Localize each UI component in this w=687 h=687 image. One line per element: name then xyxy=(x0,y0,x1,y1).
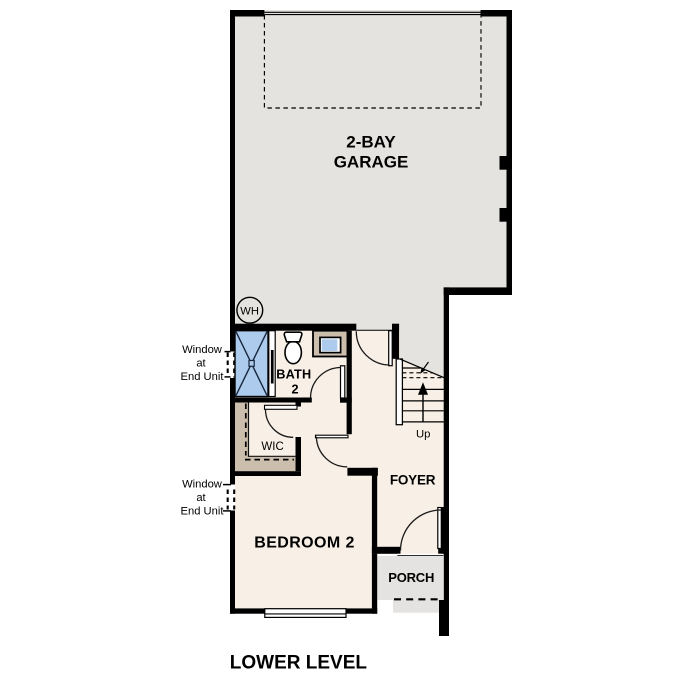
svg-text:at: at xyxy=(196,358,206,370)
svg-text:BEDROOM 2: BEDROOM 2 xyxy=(254,535,355,552)
svg-text:GARAGE: GARAGE xyxy=(334,153,409,172)
svg-text:Up: Up xyxy=(416,428,430,440)
svg-text:End Unit: End Unit xyxy=(181,505,225,517)
svg-text:WIC: WIC xyxy=(261,441,283,453)
svg-text:BATH: BATH xyxy=(276,368,311,382)
svg-text:Window: Window xyxy=(182,344,223,356)
svg-text:LOWER LEVEL: LOWER LEVEL xyxy=(230,653,368,674)
svg-text:WH: WH xyxy=(240,306,259,318)
svg-text:Window: Window xyxy=(182,478,223,490)
svg-text:FOYER: FOYER xyxy=(390,473,436,488)
svg-text:PORCH: PORCH xyxy=(388,570,434,585)
svg-text:End Unit: End Unit xyxy=(181,371,225,383)
svg-text:at: at xyxy=(196,492,206,504)
svg-text:2-BAY: 2-BAY xyxy=(346,133,396,152)
svg-text:2: 2 xyxy=(291,383,298,397)
